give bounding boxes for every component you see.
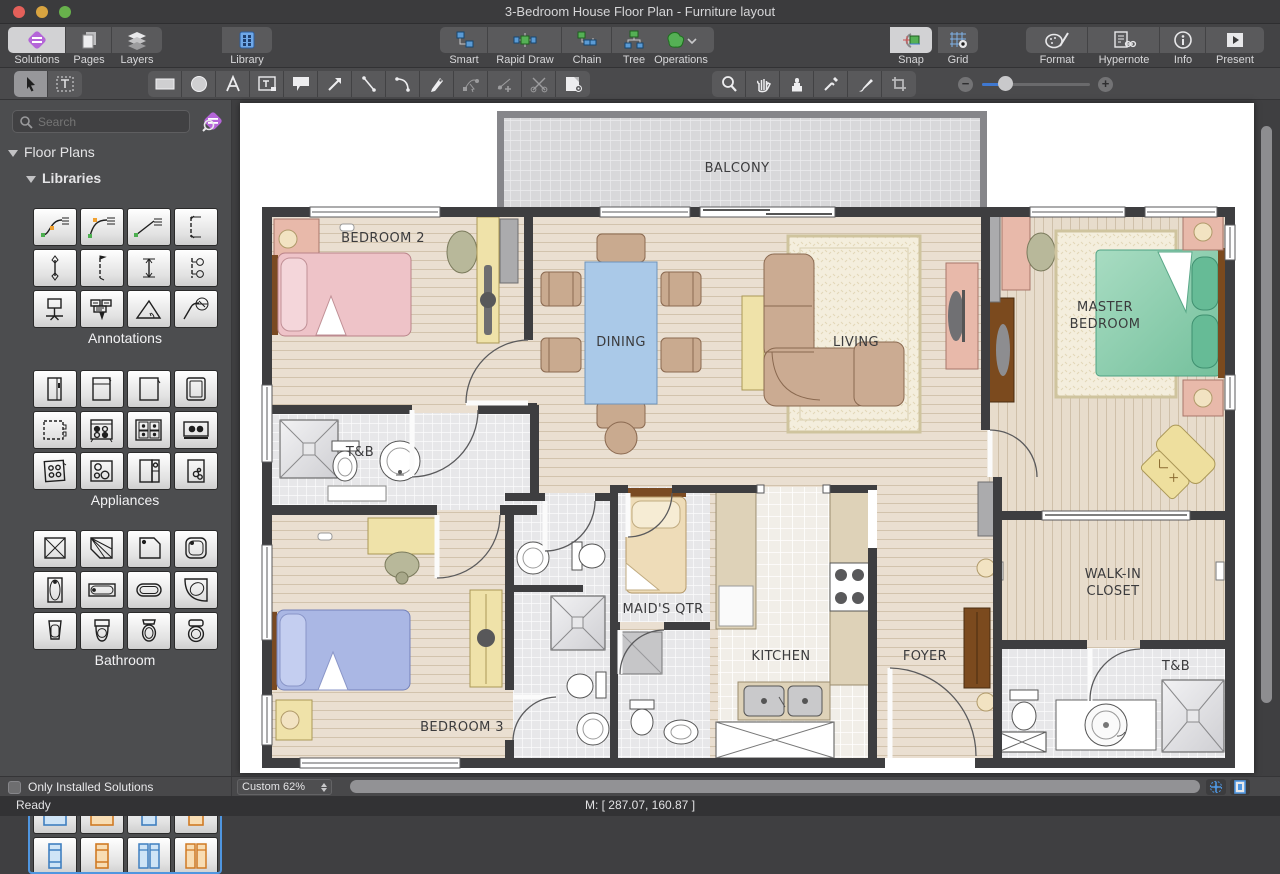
present-icon [1206, 27, 1264, 53]
zoom-out-button[interactable]: − [958, 77, 973, 92]
expand-triangle-icon [8, 150, 18, 157]
appliances-item-fridge-top-freezer[interactable] [80, 370, 124, 408]
bathroom-palette [33, 530, 217, 650]
tool-crop[interactable] [882, 71, 916, 97]
tool-pen[interactable] [420, 71, 454, 97]
annotations-item-axis-line[interactable] [33, 249, 77, 287]
bathroom-item-toilet-1[interactable] [33, 612, 77, 650]
annotations-item-curve-callout-2[interactable] [80, 208, 124, 246]
balcony-label: BALCONY [705, 161, 770, 176]
double-sink[interactable] [744, 686, 822, 716]
tool-reshape[interactable] [454, 71, 488, 97]
title-bar: 3-Bedroom House Floor Plan - Furniture l… [0, 0, 1280, 24]
bath-mat[interactable] [328, 486, 386, 501]
wall-lamp[interactable] [977, 693, 995, 711]
appliances-item-oven-4[interactable] [33, 452, 77, 490]
tool-stamp[interactable] [780, 71, 814, 97]
bathroom-item-shower-square[interactable] [33, 530, 77, 568]
bench[interactable] [998, 732, 1046, 752]
annotations-item-dimension-flag[interactable] [80, 249, 124, 287]
tool-cut[interactable] [522, 71, 556, 97]
appliances-item-fridge-plain[interactable] [127, 370, 171, 408]
info-icon [1160, 27, 1206, 53]
chair[interactable] [1027, 233, 1055, 271]
only-installed-row: Only Installed Solutions [0, 777, 232, 797]
sidebar: Floor Plans Libraries Annotations Applia… [0, 100, 232, 776]
beds-item-twin-vert-orange[interactable] [174, 837, 218, 874]
mouse-coordinates: M: [ 287.07, 160.87 ] [0, 798, 1280, 812]
zoom-slider-thumb[interactable] [998, 76, 1013, 91]
bathroom-item-shower-pentagon[interactable] [127, 530, 171, 568]
annotations-item-dimension-vertical[interactable] [174, 208, 218, 246]
vanity-sink[interactable] [1056, 700, 1156, 750]
annotations-item-node-callout[interactable] [33, 290, 77, 328]
cabinet[interactable] [978, 482, 994, 536]
expand-triangle-icon [26, 176, 36, 183]
page-view-button[interactable] [1230, 779, 1250, 795]
appliances-palette [33, 370, 217, 490]
floor-plan: BALCONY [240, 103, 1254, 773]
layers-button[interactable]: Layers [112, 27, 162, 66]
only-installed-checkbox[interactable] [8, 781, 21, 794]
main-toolbar: Solutions Pages Layers Library [0, 24, 1280, 68]
zoom-slider: − + [958, 76, 1118, 92]
annotations-item-box-callout[interactable] [80, 290, 124, 328]
living-label: LIVING [833, 335, 879, 350]
tool-brush[interactable] [848, 71, 882, 97]
window-title: 3-Bedroom House Floor Plan - Furniture l… [0, 4, 1280, 19]
appliances-item-dishwasher[interactable] [33, 411, 77, 449]
hypernote-icon [1088, 27, 1160, 53]
format-button[interactable]: Format [1026, 27, 1088, 66]
bed-single-tan[interactable] [626, 488, 686, 593]
dining-table[interactable] [585, 262, 657, 404]
walkin-label-1: WALK-IN [1085, 567, 1142, 582]
appliances-item-cooktop-2[interactable] [80, 452, 124, 490]
bedroom2-label: BEDROOM 2 [341, 231, 425, 246]
operations-button[interactable]: Operations [648, 27, 714, 66]
sink[interactable] [577, 713, 609, 745]
annotations-item-dimension-double[interactable] [127, 249, 171, 287]
tool-arrow[interactable] [318, 71, 352, 97]
annotations-item-line-callout[interactable] [127, 208, 171, 246]
appliances-item-cooker-hood[interactable] [174, 411, 218, 449]
toilet[interactable] [572, 542, 605, 570]
beds-item-single-vert-orange[interactable] [80, 837, 124, 874]
bottom-row: Only Installed Solutions Custom 62% [0, 776, 1280, 796]
appliances-item-freezer[interactable] [174, 370, 218, 408]
tool-shape-format[interactable] [556, 71, 590, 97]
master-label-2: BEDROOM [1070, 317, 1141, 332]
sideboard[interactable] [742, 296, 764, 390]
library-button[interactable]: Library [222, 27, 272, 66]
room-balcony[interactable]: BALCONY [497, 111, 987, 207]
room-bedroom2[interactable]: BEDROOM 2 [269, 217, 518, 343]
format-icon [1026, 27, 1088, 53]
sidebar-item-floor-plans[interactable]: Floor Plans [8, 144, 95, 160]
smart-icon [440, 27, 488, 53]
tool-ellipse[interactable] [182, 71, 216, 97]
appliances-item-gas-cooktop[interactable] [127, 411, 171, 449]
beds-item-single-vert-blue[interactable] [33, 837, 77, 874]
tool-text[interactable] [216, 71, 250, 97]
search-box[interactable] [12, 110, 190, 133]
appliances-item-range-4-burner[interactable] [80, 411, 124, 449]
bathroom-item-tub-built-in[interactable] [80, 571, 124, 609]
operations-icon [648, 27, 714, 53]
hypernote-button[interactable]: Hypernote [1088, 27, 1160, 66]
sink[interactable] [664, 720, 698, 744]
tool-pan[interactable] [746, 71, 780, 97]
bathroom-item-shower-corner[interactable] [80, 530, 124, 568]
annotations-palette-label: Annotations [33, 330, 217, 346]
lamp[interactable] [279, 230, 297, 248]
bed-single-pink[interactable] [269, 253, 411, 336]
only-installed-label: Only Installed Solutions [28, 780, 153, 794]
appliances-palette-label: Appliances [33, 492, 217, 508]
solutions-icon [8, 27, 66, 53]
annotations-item-angle-mar[interactable] [127, 290, 171, 328]
bathroom-item-tub-oval[interactable] [127, 571, 171, 609]
walkin-label-2: CLOSET [1087, 584, 1140, 599]
stepper-icon [321, 783, 327, 792]
toilet[interactable] [630, 700, 654, 735]
floor-vent [318, 533, 332, 540]
tool-text-select[interactable] [48, 71, 82, 97]
chain-icon [562, 27, 612, 53]
tnb1-label: T&B [345, 445, 374, 460]
pages-icon [66, 27, 112, 53]
drawing-canvas[interactable]: BALCONY [232, 100, 1280, 776]
tools-row: − + [0, 68, 1280, 100]
bed-single-blue[interactable] [268, 610, 410, 690]
beds-item-twin-vert-blue[interactable] [127, 837, 171, 874]
annotations-palette [33, 208, 217, 328]
bathroom-item-toilet-3[interactable] [127, 612, 171, 650]
sidebar-item-libraries[interactable]: Libraries [26, 170, 101, 186]
master-label-1: MASTER [1077, 300, 1133, 315]
zoom-in-button[interactable]: + [1098, 77, 1113, 92]
chain-button[interactable]: Chain [562, 27, 612, 66]
tool-add-node[interactable] [488, 71, 522, 97]
annotations-item-level-markers[interactable] [174, 249, 218, 287]
dining-label: DINING [596, 335, 646, 350]
snap-icon [890, 27, 932, 53]
wall-lamp[interactable] [977, 559, 995, 577]
pages-button[interactable]: Pages [66, 27, 112, 66]
bathroom-item-shower-round[interactable] [174, 530, 218, 568]
appliances-item-washer-column[interactable] [127, 452, 171, 490]
library-icon [222, 27, 272, 53]
bedroom3-label: BEDROOM 3 [420, 720, 504, 735]
info-button[interactable]: Info [1160, 27, 1206, 66]
tool-callout[interactable] [284, 71, 318, 97]
present-button[interactable]: Present [1206, 27, 1264, 66]
tool-line[interactable] [352, 71, 386, 97]
snap-button[interactable]: Snap [890, 27, 932, 66]
foyer-label: FOYER [903, 649, 947, 664]
tool-curve[interactable] [386, 71, 420, 97]
vertical-scrollbar[interactable] [1261, 126, 1272, 703]
cabinet[interactable] [500, 219, 518, 283]
sliding-door [700, 207, 835, 217]
bathroom-item-bidet[interactable] [174, 612, 218, 650]
solutions-button[interactable]: Solutions [8, 27, 66, 66]
tool-text-block[interactable] [250, 71, 284, 97]
kitchen-label: KITCHEN [751, 649, 810, 664]
search-input[interactable] [38, 115, 178, 129]
search-icon [19, 115, 33, 129]
tool-eyedropper[interactable] [814, 71, 848, 97]
desk[interactable] [368, 518, 438, 554]
shower[interactable] [1162, 680, 1224, 752]
bathroom-item-toilet-2[interactable] [80, 612, 124, 650]
solution-finder-icon[interactable] [201, 110, 225, 134]
rapid-draw-icon [488, 27, 562, 53]
appliances-item-mini-cooktop[interactable] [174, 452, 218, 490]
maid-label: MAID'S QTR [622, 602, 703, 617]
tool-zoom[interactable] [712, 71, 746, 97]
counter-appliance[interactable] [719, 586, 753, 626]
grid-button[interactable]: Grid [938, 27, 978, 66]
stove[interactable] [830, 563, 870, 611]
dresser[interactable] [1002, 216, 1030, 290]
bathroom-palette-label: Bathroom [33, 652, 217, 668]
tool-rectangle[interactable] [148, 71, 182, 97]
base-cabinet[interactable] [716, 722, 834, 758]
floor-vent [340, 224, 354, 231]
pan-view-button[interactable] [1206, 779, 1226, 795]
annotations-item-radius-marker[interactable] [174, 290, 218, 328]
document-page[interactable]: BALCONY [240, 103, 1254, 773]
tool-select[interactable] [14, 71, 48, 97]
grid-icon [938, 27, 978, 53]
annotations-item-curve-callout-1[interactable] [33, 208, 77, 246]
rapid-draw-button[interactable]: Rapid Draw [488, 27, 562, 66]
tv[interactable] [948, 291, 964, 341]
bathroom-item-tub-corner[interactable] [174, 571, 218, 609]
status-bar: Ready M: [ 287.07, 160.87 ] [0, 796, 1280, 816]
smart-button[interactable]: Smart [440, 27, 488, 66]
horizontal-scrollbar[interactable] [350, 780, 1200, 793]
tnb2-label: T&B [1161, 659, 1190, 674]
desk-chair[interactable] [447, 231, 477, 273]
toilet[interactable] [1010, 690, 1038, 730]
toilet[interactable] [567, 672, 606, 698]
bathroom-item-tub-vertical[interactable] [33, 571, 77, 609]
layers-icon [112, 27, 162, 53]
zoom-level-dropdown[interactable]: Custom 62% [237, 779, 332, 795]
appliances-item-fridge-single[interactable] [33, 370, 77, 408]
door-jamb [1216, 562, 1224, 580]
